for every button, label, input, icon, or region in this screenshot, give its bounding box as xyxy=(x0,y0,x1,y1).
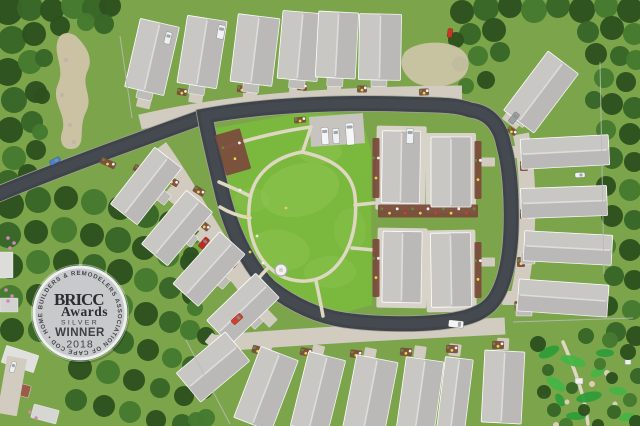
golf-sand xyxy=(589,381,595,387)
neighbor-building xyxy=(0,252,13,278)
tree xyxy=(94,14,114,34)
tree xyxy=(51,217,77,243)
tree xyxy=(468,46,488,66)
aerial-photo-canvas: • HOME BUILDERS & REMODELERS ASSOCIATION… xyxy=(0,0,640,426)
tree xyxy=(159,311,181,333)
townhouse-building xyxy=(358,14,401,81)
tree xyxy=(162,348,182,368)
tree xyxy=(26,250,50,274)
tree xyxy=(537,385,551,399)
badge-logo-bottom: Awards xyxy=(61,304,107,319)
tree xyxy=(577,21,599,43)
golf-hut xyxy=(575,378,583,384)
tree xyxy=(585,43,607,65)
pink-flowers xyxy=(6,236,10,240)
tree xyxy=(623,393,637,407)
tree xyxy=(607,405,621,419)
pink-flowers xyxy=(28,410,32,414)
townhouse-building xyxy=(381,131,420,204)
tree xyxy=(616,72,636,92)
tree xyxy=(620,344,636,360)
badge-award-year: 2018 xyxy=(66,339,93,351)
tree xyxy=(619,179,640,201)
tree xyxy=(25,187,51,213)
driveway xyxy=(413,345,427,359)
rock xyxy=(64,58,68,62)
tree xyxy=(1,87,27,113)
driveway xyxy=(481,158,495,167)
tree xyxy=(35,49,53,67)
pink-flowers xyxy=(10,294,14,298)
golf-sand xyxy=(565,400,570,405)
pink-flowers xyxy=(34,416,38,420)
tree xyxy=(594,68,614,88)
tree xyxy=(80,223,104,247)
townhouse-building xyxy=(431,137,471,207)
townhouse-building xyxy=(382,231,422,303)
lawn-flower xyxy=(285,207,288,210)
sand-clearing xyxy=(402,43,469,87)
tree xyxy=(32,124,48,140)
tree xyxy=(619,239,640,261)
tree xyxy=(150,378,170,398)
townhouse-building xyxy=(315,11,358,79)
tree xyxy=(180,320,200,340)
car xyxy=(332,128,340,143)
badge-award-title: WINNER xyxy=(55,327,105,339)
badge-award-level: SILVER xyxy=(61,320,99,327)
townhouse-building xyxy=(521,186,608,219)
mulch-garden xyxy=(492,341,504,349)
tree xyxy=(542,364,554,376)
rock xyxy=(60,93,64,97)
mulch-garden xyxy=(372,138,379,198)
mulch-garden xyxy=(372,239,379,297)
tree xyxy=(578,328,594,344)
townhouse-building xyxy=(517,279,609,317)
tree xyxy=(77,13,95,31)
tree xyxy=(619,123,640,145)
rock xyxy=(72,140,76,144)
tree xyxy=(578,404,590,416)
tree xyxy=(26,140,46,160)
tree xyxy=(490,42,510,62)
tree xyxy=(134,268,158,292)
mulch-garden xyxy=(294,116,307,123)
tree xyxy=(123,369,145,391)
tree xyxy=(602,332,618,348)
townhouse-building xyxy=(230,14,280,87)
driveway xyxy=(481,258,495,267)
car xyxy=(575,172,585,177)
car xyxy=(447,28,453,38)
aerial-photo: • HOME BUILDERS & REMODELERS ASSOCIATION… xyxy=(0,0,640,426)
lawn-flower xyxy=(256,235,259,238)
car xyxy=(406,128,414,143)
mulch-garden xyxy=(474,141,481,199)
tree xyxy=(606,372,618,384)
car xyxy=(345,123,355,146)
mulch-garden xyxy=(400,347,413,356)
tree xyxy=(119,401,141,423)
rock xyxy=(68,123,72,127)
tree xyxy=(450,0,474,24)
tree xyxy=(594,358,606,370)
tree xyxy=(0,318,24,342)
tree xyxy=(93,395,115,417)
tree xyxy=(134,302,158,326)
tree xyxy=(482,18,506,42)
townhouse-building xyxy=(430,233,471,308)
townhouse-building xyxy=(481,350,525,424)
townhouse-building xyxy=(520,135,609,170)
mulch-garden xyxy=(446,345,458,354)
townhouse-building xyxy=(523,231,612,266)
tree xyxy=(601,93,623,115)
tree xyxy=(65,389,87,411)
tree xyxy=(24,220,48,244)
golf-hut xyxy=(625,360,631,365)
tree xyxy=(547,403,561,417)
lawn-flower xyxy=(246,215,249,218)
tree xyxy=(96,360,120,384)
golf-hole-green xyxy=(596,349,614,357)
tree xyxy=(530,336,546,352)
car xyxy=(321,127,329,144)
pink-flowers xyxy=(4,288,8,292)
car xyxy=(448,320,464,329)
mulch-garden xyxy=(357,86,367,93)
tree xyxy=(22,22,46,46)
tree xyxy=(477,71,495,89)
pink-flowers xyxy=(6,299,10,303)
gazebo xyxy=(275,264,287,276)
tree xyxy=(50,16,70,36)
tree xyxy=(34,88,50,104)
tree xyxy=(54,186,78,210)
tree xyxy=(137,339,159,361)
pink-flowers xyxy=(12,241,16,245)
tree xyxy=(105,227,131,253)
tree xyxy=(566,382,578,394)
mulch-garden xyxy=(419,88,429,96)
tree xyxy=(604,266,624,286)
lawn-flower xyxy=(262,262,265,265)
lawn-flower xyxy=(239,189,242,192)
tree xyxy=(81,189,107,215)
tree xyxy=(600,16,624,40)
lawn-flower xyxy=(249,251,252,254)
mulch-garden xyxy=(474,242,481,298)
pink-flowers xyxy=(8,246,12,250)
